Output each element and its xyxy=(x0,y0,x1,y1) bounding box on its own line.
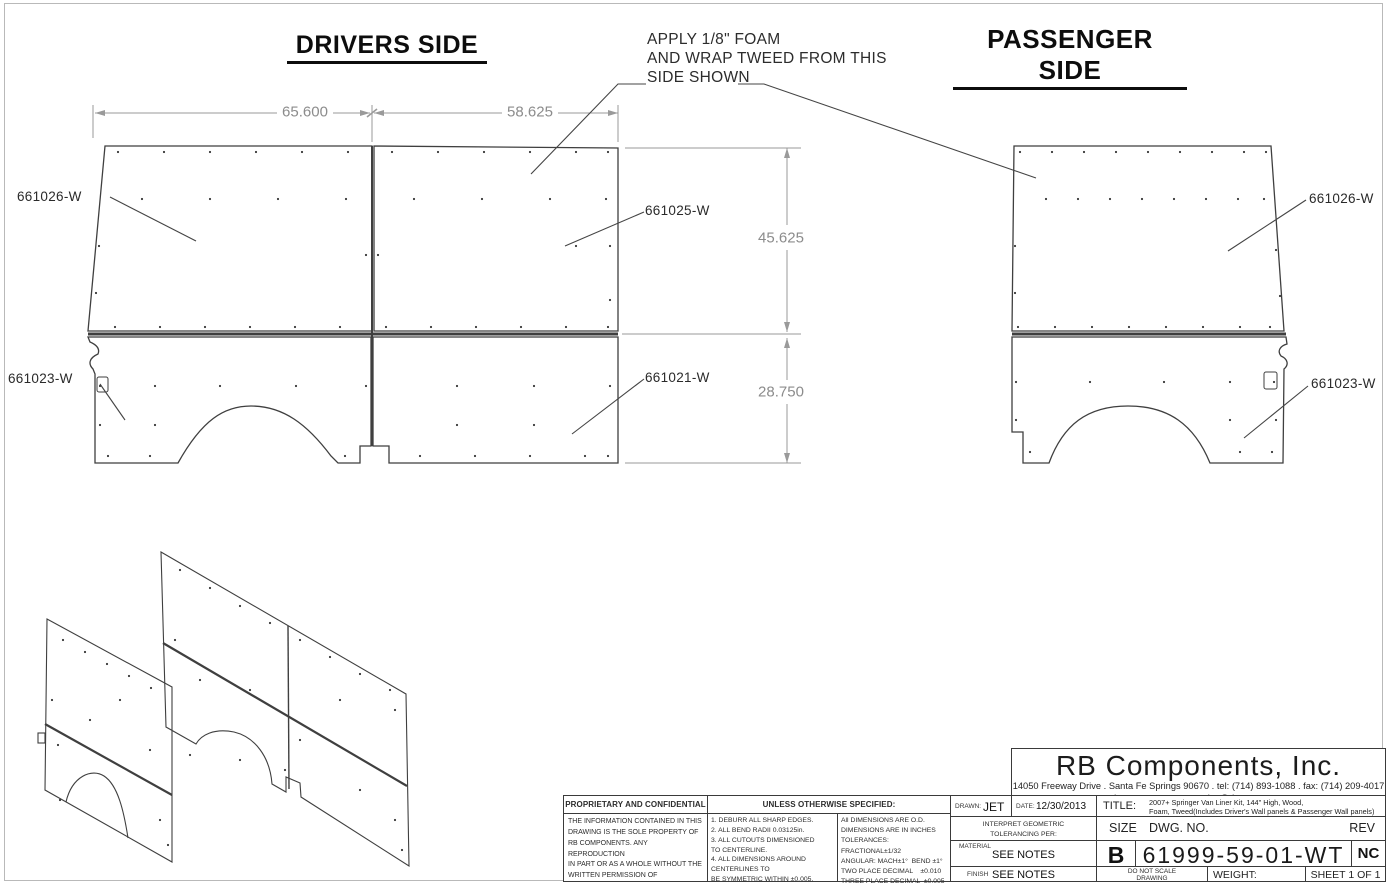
dwg-no-label: DWG. NO. xyxy=(1149,821,1209,835)
rev-value-cell: NC xyxy=(1351,840,1386,867)
drawing-sheet: DRIVERS SIDE PASSENGER SIDE APPLY 1/8" F… xyxy=(0,0,1386,883)
date-cell: DATE: 12/30/2013 xyxy=(1011,795,1097,817)
weight-cell: WEIGHT: xyxy=(1207,866,1306,882)
proprietary-header-cell: PROPRIETARY AND CONFIDENTIAL xyxy=(563,795,708,814)
drivers-upper-left-panel xyxy=(88,146,372,331)
drivers-side-view xyxy=(88,146,618,463)
part-label-drivers-upper-left: 661026-W xyxy=(17,189,82,204)
part-label-passenger-upper: 661026-W xyxy=(1309,191,1374,206)
passenger-lower-cutout xyxy=(1264,372,1277,389)
isometric-view xyxy=(38,552,409,866)
weight-label: WEIGHT: xyxy=(1213,869,1257,881)
dim-top-left-width: 65.600 xyxy=(279,104,331,121)
finish-cell: FINISH SEE NOTES xyxy=(950,866,1097,882)
foam-annotation-line3: SIDE SHOWN xyxy=(647,69,750,87)
note-3: 3. ALL CUTOUTS DIMENSIONED TO CENTERLINE… xyxy=(711,836,836,856)
part-label-drivers-lower-left: 661023-W xyxy=(8,371,73,386)
leader-661023-drivers xyxy=(100,384,125,420)
iso-wall-left-outline xyxy=(45,619,172,862)
interpret-geometric-cell: INTERPRET GEOMETRIC TOLERANCING PER: xyxy=(950,816,1097,841)
notes-list-cell: 1. DEBURR ALL SHARP EDGES. 2. ALL BEND R… xyxy=(707,813,838,882)
passenger-lower-panel xyxy=(1012,337,1287,463)
drawn-label: DRAWN: xyxy=(955,803,981,810)
date-label: DATE: xyxy=(1016,803,1035,810)
size-value-cell: B xyxy=(1096,840,1136,867)
title-value-line2: Foam, Tweed(Includes Driver's Wall panel… xyxy=(1149,807,1374,816)
note-1: 1. DEBURR ALL SHARP EDGES. xyxy=(711,816,836,826)
leader-661026-drivers xyxy=(110,197,196,241)
drivers-lower-right-panel xyxy=(373,337,618,463)
annotation-leader-left xyxy=(531,84,646,174)
leader-661023-passenger xyxy=(1244,386,1308,438)
material-cell: MATERIAL SEE NOTES xyxy=(950,840,1097,867)
title-value-line1: 2007+ Springer Van Liner Kit, 144" High,… xyxy=(1149,798,1303,807)
date-value: 12/30/2013 xyxy=(1036,801,1086,812)
finish-label: FINISH xyxy=(967,871,988,878)
drivers-lower-left-panel xyxy=(88,337,371,463)
iso-wall-right-divider xyxy=(288,626,289,789)
dimension-arrowheads xyxy=(95,110,790,463)
proprietary-body-cell: THE INFORMATION CONTAINED IN THIS DRAWIN… xyxy=(563,813,708,882)
dim-upper-height: 45.625 xyxy=(755,230,807,247)
iso-wall-right-seam xyxy=(163,643,407,786)
do-not-scale-cell: DO NOT SCALE DRAWING xyxy=(1096,866,1208,882)
drawn-value: JET xyxy=(983,800,1004,814)
sheet-number-cell: SHEET 1 OF 1 xyxy=(1305,866,1386,882)
note-4: 4. ALL DIMENSIONS AROUND CENTERLINES TO … xyxy=(711,855,836,883)
material-label: MATERIAL xyxy=(959,843,991,850)
iso-wall-right-outline xyxy=(161,552,409,866)
foam-annotation-line1: APPLY 1/8" FOAM xyxy=(647,31,780,49)
leader-661025-drivers xyxy=(565,212,644,246)
dwg-number-cell: 61999-59-01-WT xyxy=(1135,840,1352,867)
annotation-leader-right xyxy=(738,84,1036,178)
dim-lower-height: 28.750 xyxy=(755,384,807,401)
drivers-side-title: DRIVERS SIDE xyxy=(287,31,487,64)
foam-annotation-line2: AND WRAP TWEED FROM THIS xyxy=(647,50,887,68)
iso-wall-left-arch xyxy=(66,773,128,838)
dimension-lines xyxy=(93,105,801,463)
part-label-drivers-upper-right: 661025-W xyxy=(645,203,710,218)
iso-wall-left-seam xyxy=(45,724,172,795)
unless-otherwise-header-cell: UNLESS OTHERWISE SPECIFIED: xyxy=(707,795,951,814)
passenger-side-view xyxy=(1012,146,1287,463)
part-label-passenger-lower: 661023-W xyxy=(1311,376,1376,391)
leader-661021-drivers xyxy=(572,379,644,434)
rev-label: REV xyxy=(1349,821,1375,835)
dim-top-right-width: 58.625 xyxy=(504,104,556,121)
size-label: SIZE xyxy=(1109,821,1137,835)
panel-hole-dots xyxy=(52,152,1280,850)
drivers-lower-cutout xyxy=(97,377,108,392)
title-label: TITLE: xyxy=(1103,800,1136,812)
leader-661026-passenger xyxy=(1228,200,1306,251)
passenger-side-title: PASSENGER SIDE xyxy=(953,24,1187,90)
title-cell: TITLE: 2007+ Springer Van Liner Kit, 144… xyxy=(1096,795,1386,817)
tolerances-cell: All DIMENSIONS ARE O.D. DIMENSIONS ARE I… xyxy=(837,813,951,882)
drawn-cell: DRAWN: JET xyxy=(950,795,1012,817)
company-address-line1: 14050 Freeway Drive . Santa Fe Springs 9… xyxy=(1012,780,1385,792)
iso-wall-left-cutout xyxy=(38,733,45,743)
size-dwg-rev-header-cell: SIZE DWG. NO. REV xyxy=(1096,816,1386,841)
passenger-upper-panel xyxy=(1012,146,1284,331)
part-label-drivers-lower-right: 661021-W xyxy=(645,370,710,385)
note-2: 2. ALL BEND RADII 0.03125in. xyxy=(711,826,836,836)
company-block: RB Components, Inc. 14050 Freeway Drive … xyxy=(1011,748,1386,796)
company-name: RB Components, Inc. xyxy=(1012,749,1385,780)
